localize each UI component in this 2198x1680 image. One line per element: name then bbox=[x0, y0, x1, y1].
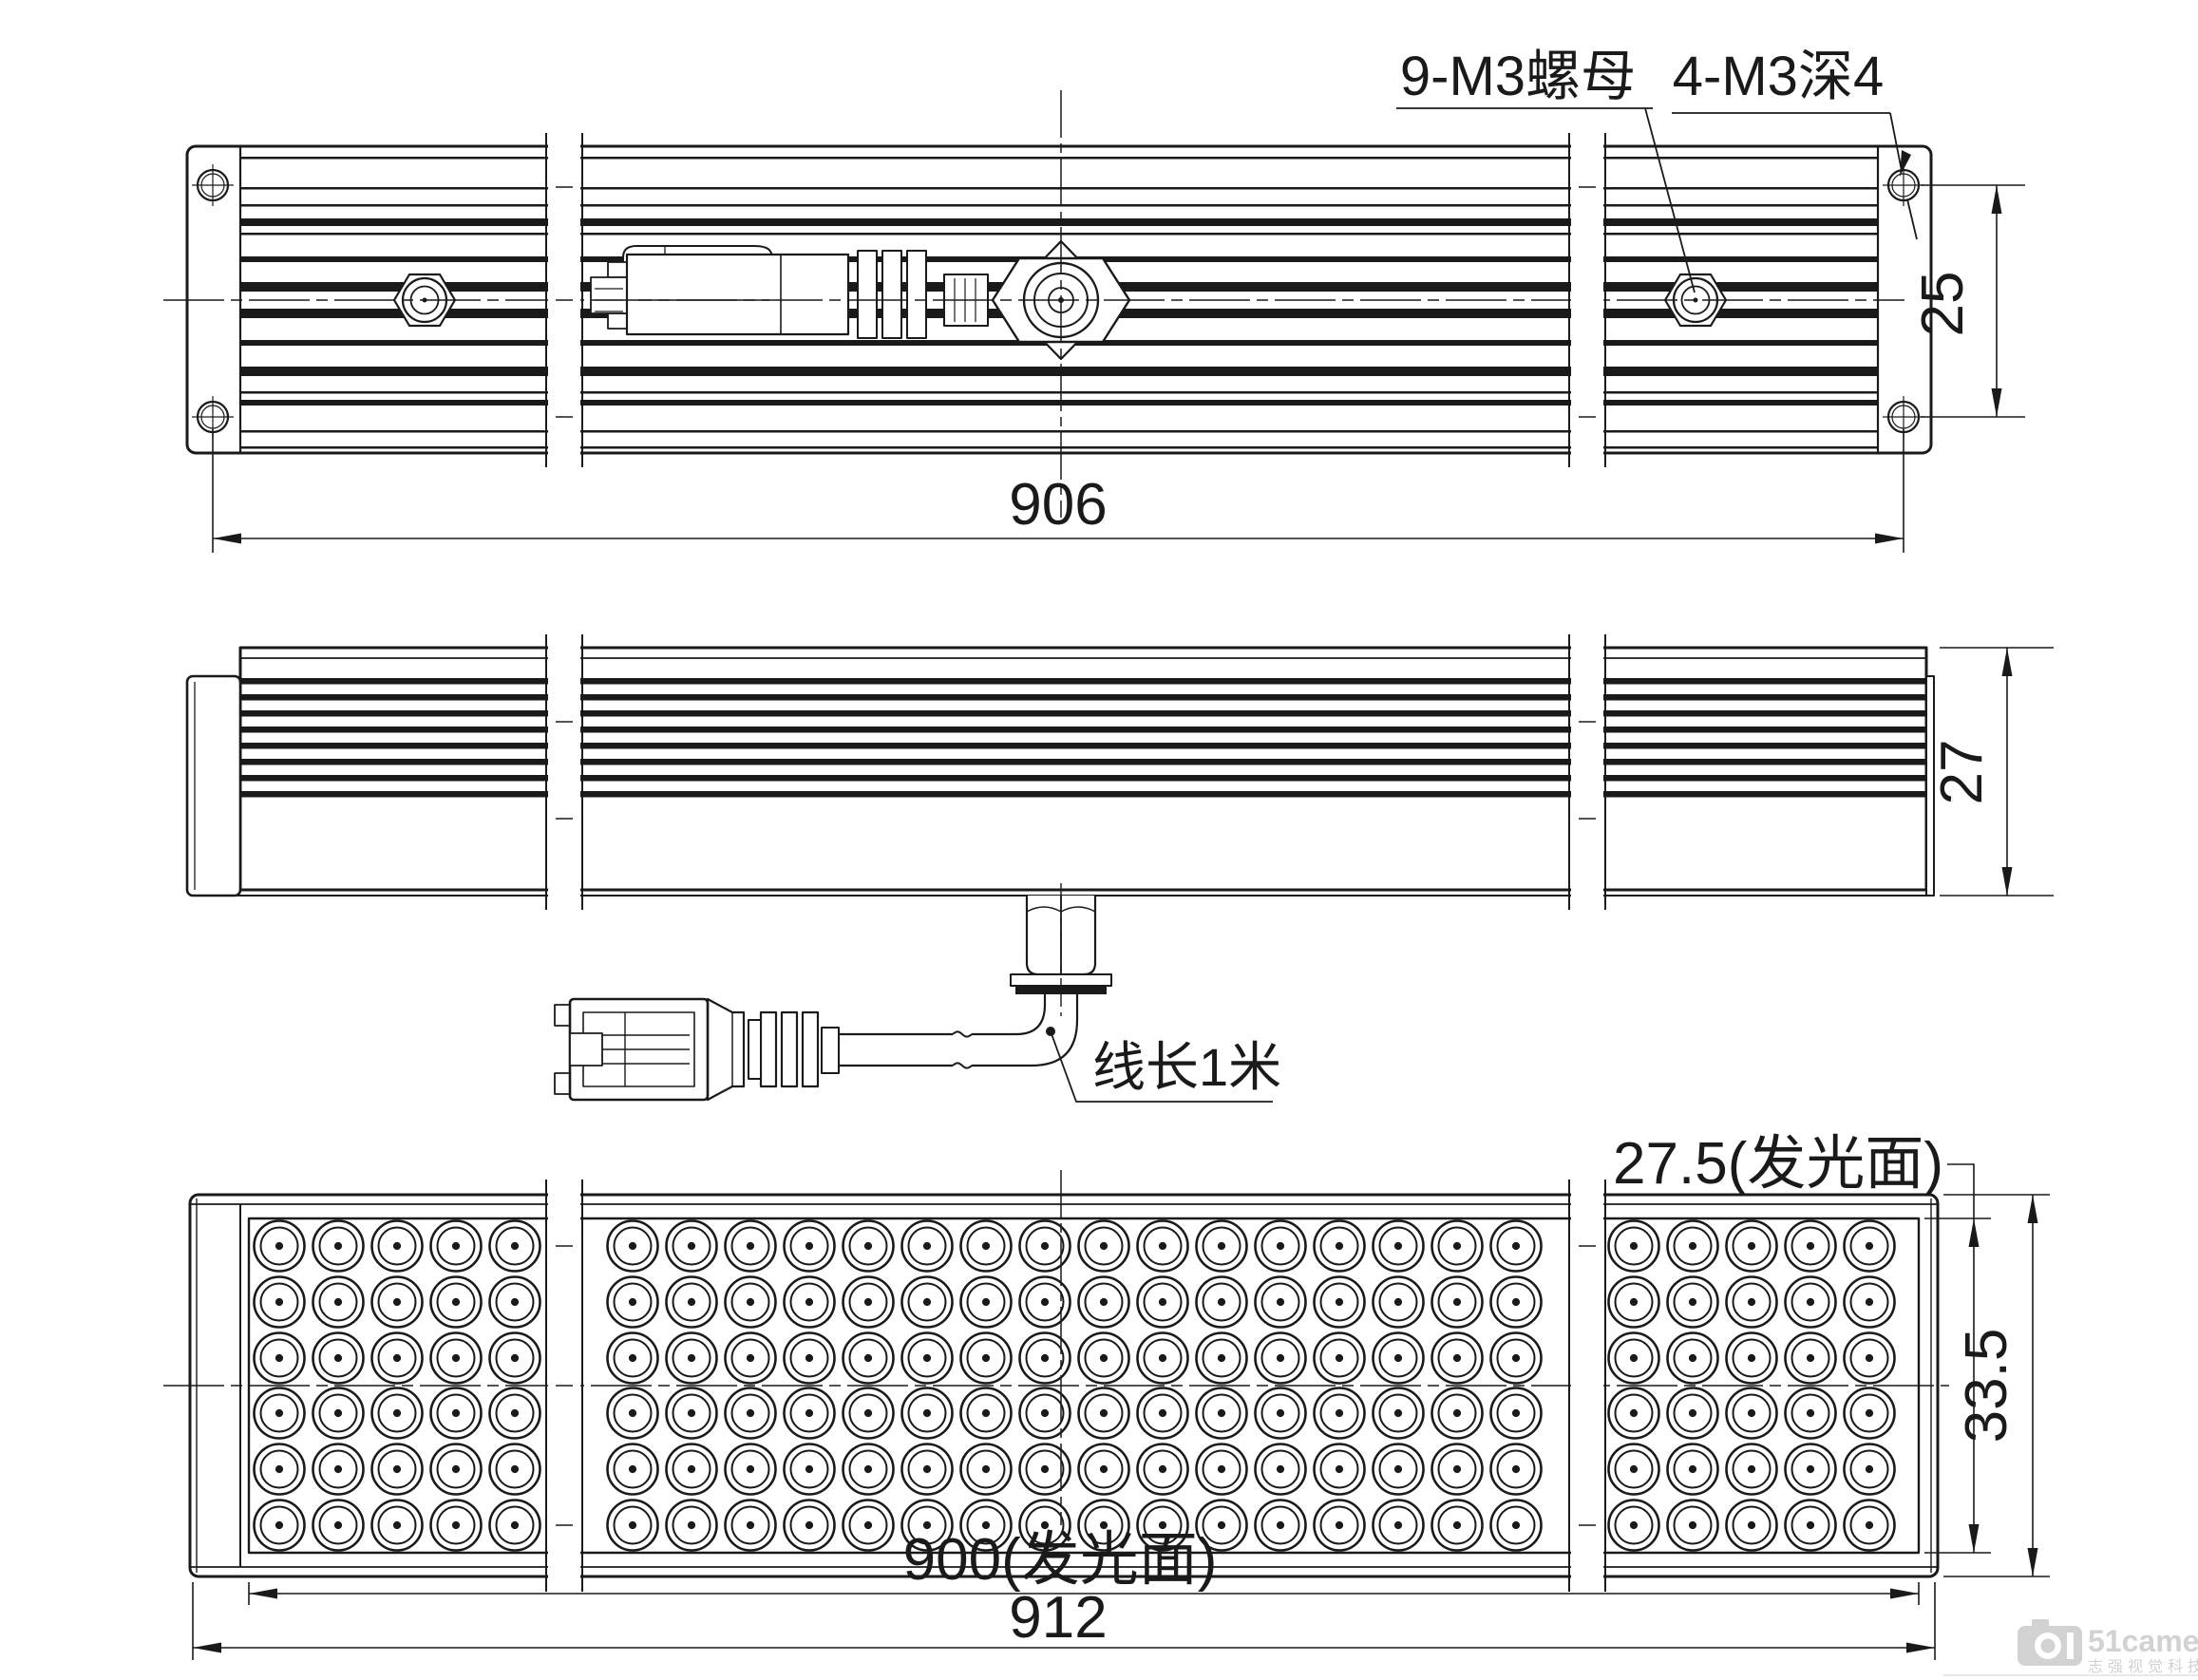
dim-33-5-text: 33.5 bbox=[1954, 1329, 2019, 1444]
dim-25-text: 25 bbox=[1910, 272, 1976, 337]
watermark-subtitle-text: 志强视觉科技 bbox=[2088, 1658, 2198, 1675]
watermark: 51camera 志强视觉科技 bbox=[1943, 1619, 2198, 1675]
dim-27-5-text: 27.5(发光面) bbox=[1613, 1131, 1943, 1197]
dim-912-text: 912 bbox=[1009, 1585, 1107, 1651]
connector-plug-side bbox=[555, 999, 839, 1100]
camera-logo-icon bbox=[2018, 1619, 2082, 1666]
side-view bbox=[187, 631, 1934, 1102]
dim-906-text: 906 bbox=[1009, 472, 1107, 538]
note-nut-text: 9-M3螺母 bbox=[1400, 46, 1636, 107]
dim-27-text: 27 bbox=[1929, 740, 1995, 805]
drawing-canvas: 906 25 9-M3螺母 4-M3深4 bbox=[0, 0, 2198, 1680]
note-cable-text: 线长1米 bbox=[1092, 1037, 1281, 1097]
watermark-brand-text: 51camera bbox=[2088, 1624, 2198, 1658]
cad-drawing: 906 25 9-M3螺母 4-M3深4 bbox=[0, 0, 2198, 1680]
dim-900-text: 900(发光面) bbox=[903, 1527, 1218, 1593]
note-tap-text: 4-M3深4 bbox=[1673, 46, 1884, 107]
rear-view bbox=[163, 90, 1931, 518]
